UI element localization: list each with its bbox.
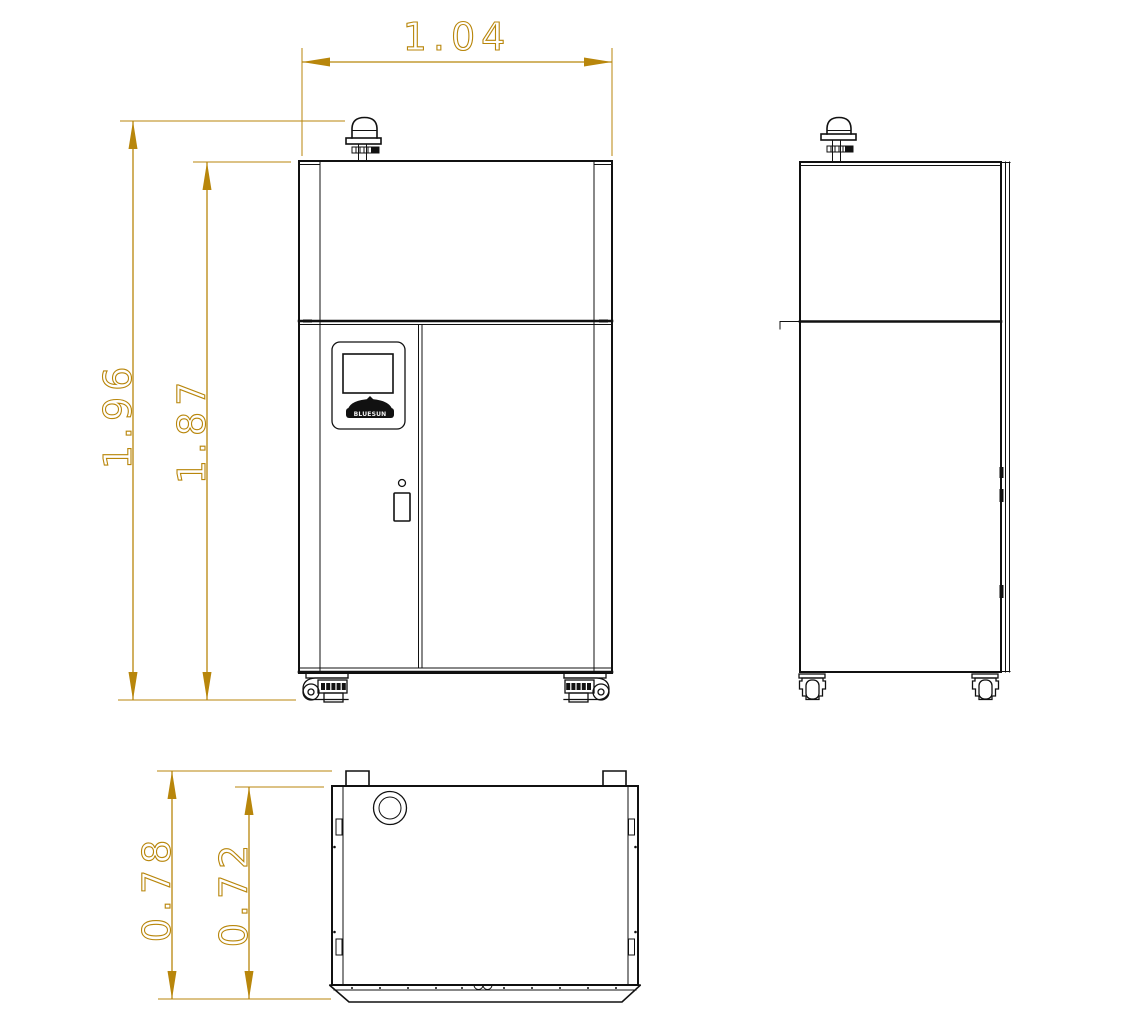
dim-text-body-depth: 0.72 (212, 839, 256, 948)
logo-arch-icon (348, 399, 392, 409)
caster-side-right (972, 674, 999, 700)
valve-dome-icon (827, 118, 851, 135)
drawing-canvas: BLUESUN (0, 0, 1132, 1023)
door-handle (394, 493, 410, 521)
vent-valve-side (821, 118, 856, 163)
caster-front-left (303, 673, 348, 702)
valve-port-circle (374, 792, 407, 825)
wheel-icon (806, 680, 819, 699)
edge-bracket (629, 819, 635, 835)
wheel-icon (303, 684, 319, 700)
arrow-left-icon (302, 58, 330, 67)
logo-text: BLUESUN (354, 411, 387, 418)
arrow-up-icon (203, 162, 212, 190)
hinge-block (1000, 585, 1004, 598)
dim-text-total-height: 1.96 (96, 361, 140, 470)
hinge-block (1000, 467, 1004, 478)
control-screen (343, 354, 393, 393)
dim-total-height: 1.96 (96, 121, 345, 700)
arrow-right-icon (584, 58, 612, 67)
rear-tab-right (603, 771, 626, 786)
dim-body-depth: 0.72 (212, 787, 324, 999)
indicator-light (399, 480, 406, 487)
side-divider-notch (780, 322, 800, 330)
dim-text-body-height: 1.87 (170, 376, 214, 485)
brand-logo: BLUESUN (346, 396, 394, 418)
arrow-up-icon (245, 787, 254, 815)
dim-text-front-width: 1.04 (403, 15, 512, 59)
hinge-block (1000, 489, 1004, 502)
arrow-down-icon (245, 971, 254, 999)
vent-valve-front (346, 118, 381, 162)
rear-tab-left (346, 771, 369, 786)
side-cabinet-outline (800, 162, 1001, 672)
arrow-down-icon (203, 672, 212, 700)
caster-side-left (799, 674, 826, 700)
arrow-up-icon (168, 771, 177, 799)
caster-front-right (564, 673, 609, 702)
bottom-outline (332, 786, 638, 985)
edge-bracket (629, 939, 635, 955)
valve-dome-icon (352, 118, 377, 139)
dim-body-height: 1.87 (170, 162, 291, 700)
dim-front-width: 1.04 (302, 15, 612, 156)
edge-bracket (336, 819, 342, 835)
arrow-down-icon (129, 672, 138, 700)
technical-drawing: BLUESUN (0, 0, 1132, 1023)
edge-bracket (336, 939, 342, 955)
side-view (780, 118, 1010, 700)
front-cabinet-outline (299, 161, 612, 673)
dim-text-total-depth: 0.78 (135, 834, 179, 943)
arrow-up-icon (129, 121, 138, 149)
bottom-view (330, 771, 640, 1002)
arrow-down-icon (168, 971, 177, 999)
base-plate (330, 985, 640, 1002)
front-view: BLUESUN (299, 118, 612, 703)
dimensions: 1.04 1.96 1.87 0.78 (96, 15, 612, 999)
